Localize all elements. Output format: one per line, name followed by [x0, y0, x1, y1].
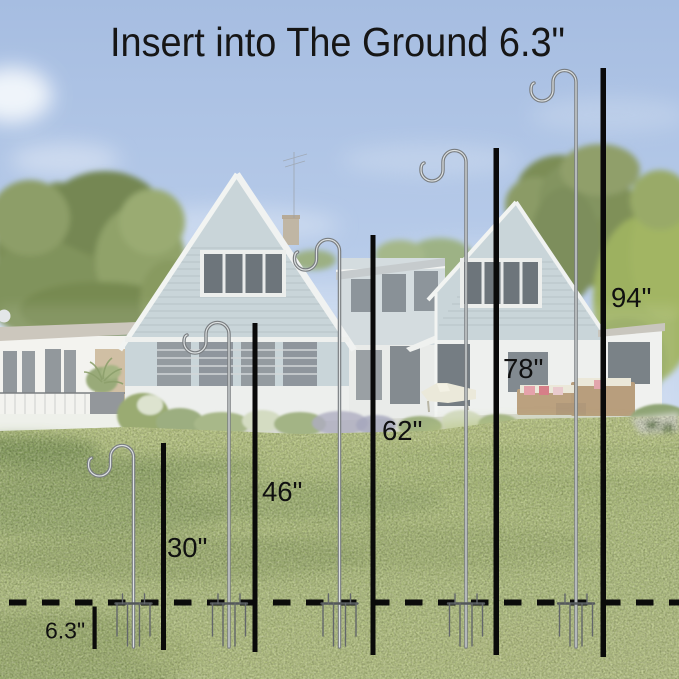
svg-text:30": 30" [167, 532, 207, 563]
svg-text:Insert into The Ground 6.3": Insert into The Ground 6.3" [110, 19, 565, 65]
svg-text:94": 94" [611, 282, 651, 313]
svg-text:6.3": 6.3" [45, 618, 85, 644]
svg-text:62": 62" [382, 415, 422, 446]
svg-text:46": 46" [262, 476, 302, 507]
svg-text:78": 78" [503, 353, 543, 384]
